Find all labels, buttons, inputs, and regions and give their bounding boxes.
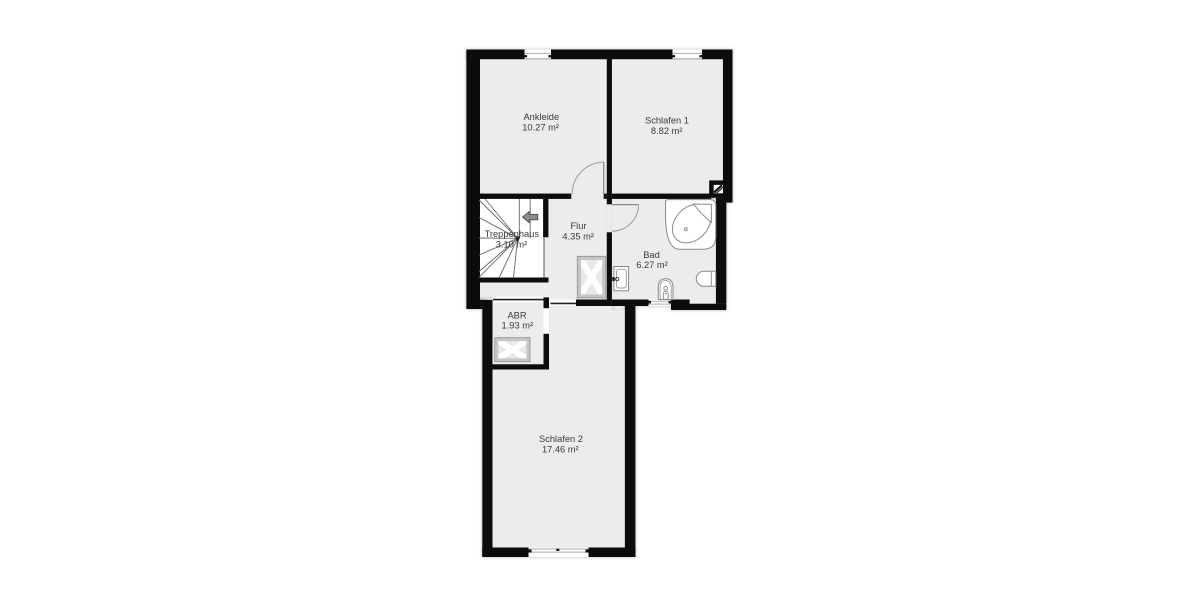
svg-text:17.46 m²: 17.46 m² bbox=[542, 445, 579, 455]
svg-text:1.93 m²: 1.93 m² bbox=[502, 320, 534, 330]
svg-text:Ankleide: Ankleide bbox=[523, 112, 559, 122]
svg-text:3.10 m²: 3.10 m² bbox=[496, 240, 528, 250]
svg-text:Schlafen 1: Schlafen 1 bbox=[645, 116, 689, 126]
svg-text:ABR: ABR bbox=[507, 310, 526, 320]
svg-text:Flur: Flur bbox=[570, 221, 586, 231]
svg-text:8.82 m²: 8.82 m² bbox=[651, 126, 683, 136]
svg-text:6.27 m²: 6.27 m² bbox=[636, 260, 668, 270]
svg-text:4.35 m²: 4.35 m² bbox=[562, 232, 594, 242]
svg-text:10.27 m²: 10.27 m² bbox=[522, 123, 559, 133]
svg-text:Schlafen 2: Schlafen 2 bbox=[539, 434, 583, 444]
svg-text:Treppenhaus: Treppenhaus bbox=[485, 229, 540, 239]
svg-text:Bad: Bad bbox=[643, 250, 660, 260]
